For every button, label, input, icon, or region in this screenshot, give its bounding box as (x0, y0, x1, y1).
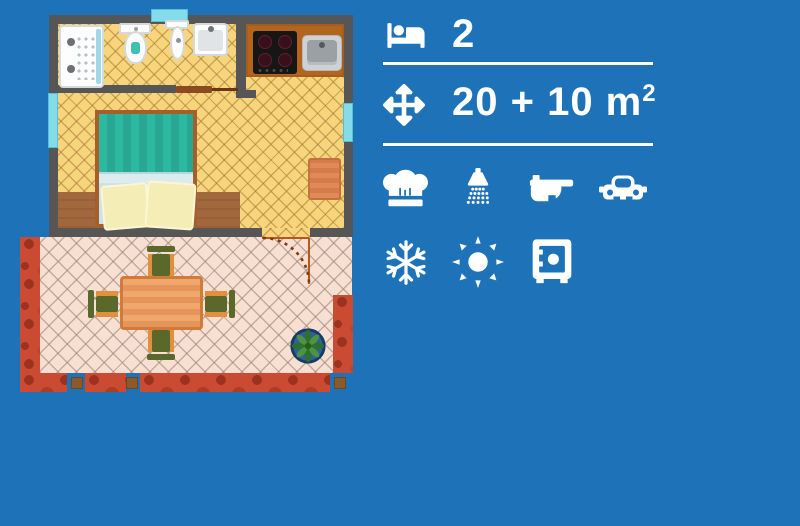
snowflake-icon (383, 238, 429, 287)
wc-icon (529, 174, 575, 210)
occupancy-value: 2 (452, 14, 475, 54)
area-superscript: 2 (642, 80, 656, 107)
safe-icon (529, 237, 575, 286)
move-arrows-icon (383, 84, 425, 126)
car-icon (598, 170, 648, 206)
divider (383, 62, 653, 65)
area-value: 20 + 10 m2 (452, 82, 657, 122)
divider (383, 143, 653, 146)
chef-hat-icon (383, 164, 428, 217)
info-panel: 2 20 + 10 m2 (0, 0, 800, 526)
sun-icon (451, 235, 505, 289)
bed-icon (383, 19, 429, 52)
shower-icon (456, 167, 500, 213)
